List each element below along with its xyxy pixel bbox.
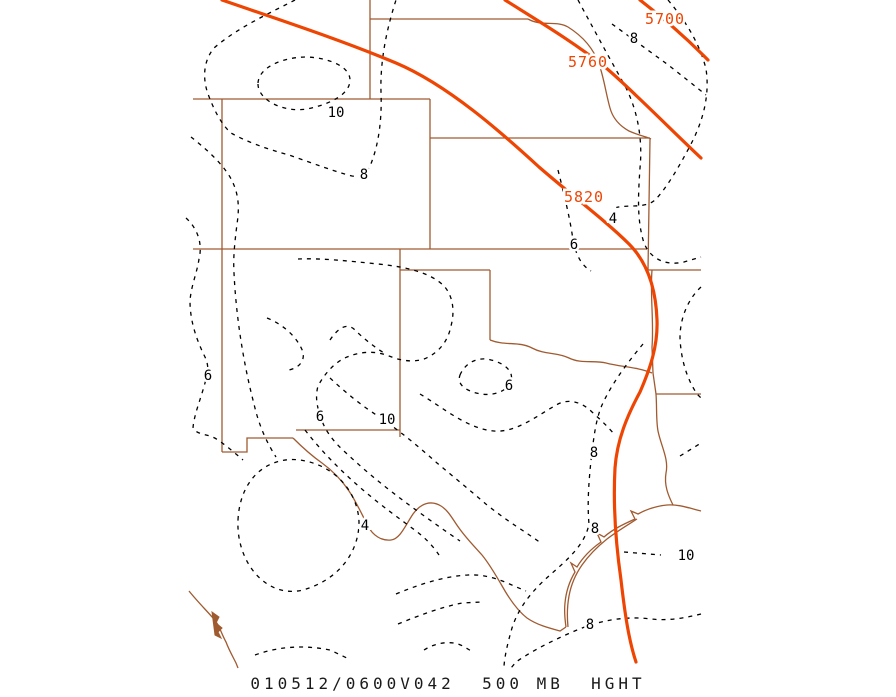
dashed-contour — [330, 326, 384, 353]
dashed-contour — [624, 552, 661, 555]
dashed-contour-label: 8 — [591, 521, 599, 537]
coastline-gulf-of-california — [189, 591, 238, 668]
border-nm-bootheel — [222, 438, 293, 452]
dashed-contour — [305, 430, 439, 555]
dashed-contour — [191, 137, 276, 457]
dashed-contour-label: 8 — [630, 31, 638, 47]
height-contour-label: 5760 — [568, 53, 608, 71]
state-borders — [189, 0, 701, 668]
dashed-contour — [614, 0, 707, 208]
weather-map: 57005760582081084666106884108 010512/060… — [0, 0, 896, 697]
dashed-contour — [420, 394, 614, 434]
dashed-contour-label: 10 — [678, 548, 695, 564]
dashed-contour-label: 8 — [590, 445, 598, 461]
map-canvas: 57005760582081084666106884108 — [0, 0, 896, 697]
map-caption: 010512/0600V042 500 MB HGHT — [0, 674, 896, 693]
dashed-contour — [459, 359, 511, 395]
dashed-contour-label: 6 — [204, 368, 212, 384]
border-tx-la-sabine — [656, 394, 673, 505]
border-mo-west — [648, 139, 650, 270]
dashed-contour-label: 10 — [328, 105, 345, 121]
dashed-contour-label: 8 — [360, 167, 368, 183]
dashed-contour — [398, 602, 482, 624]
height-contour-label: 5820 — [564, 188, 604, 206]
dashed-contour — [680, 287, 702, 399]
dashed-contours — [186, 0, 707, 668]
dashed-contour-label: 6 — [505, 378, 513, 394]
dashed-contour — [504, 344, 643, 666]
coastline-inlet-detail — [212, 612, 222, 638]
dashed-contour-label: 4 — [361, 518, 369, 534]
dashed-contour — [258, 57, 350, 110]
dashed-contour-label: 10 — [379, 412, 396, 428]
dashed-contour — [511, 614, 701, 668]
border-ar-tx-corner — [653, 373, 656, 394]
dashed-contour — [424, 643, 473, 652]
dashed-contour — [267, 318, 303, 370]
contour-labels: 57005760582081084666106884108 — [204, 10, 695, 633]
coastline-gulf — [565, 505, 701, 627]
height-contour-label: 5700 — [645, 10, 685, 28]
dashed-contour — [298, 259, 460, 541]
dashed-contour — [680, 443, 701, 456]
dashed-contour-label: 6 — [570, 237, 578, 253]
dashed-contour-label: 8 — [586, 617, 594, 633]
dashed-contour-label: 4 — [609, 211, 617, 227]
border-rio-grande — [293, 438, 566, 631]
dashed-contour — [255, 647, 349, 659]
border-red-river — [490, 340, 652, 373]
dashed-contour — [578, 0, 701, 263]
dashed-contour — [396, 575, 526, 594]
dashed-contour-label: 6 — [316, 409, 324, 425]
